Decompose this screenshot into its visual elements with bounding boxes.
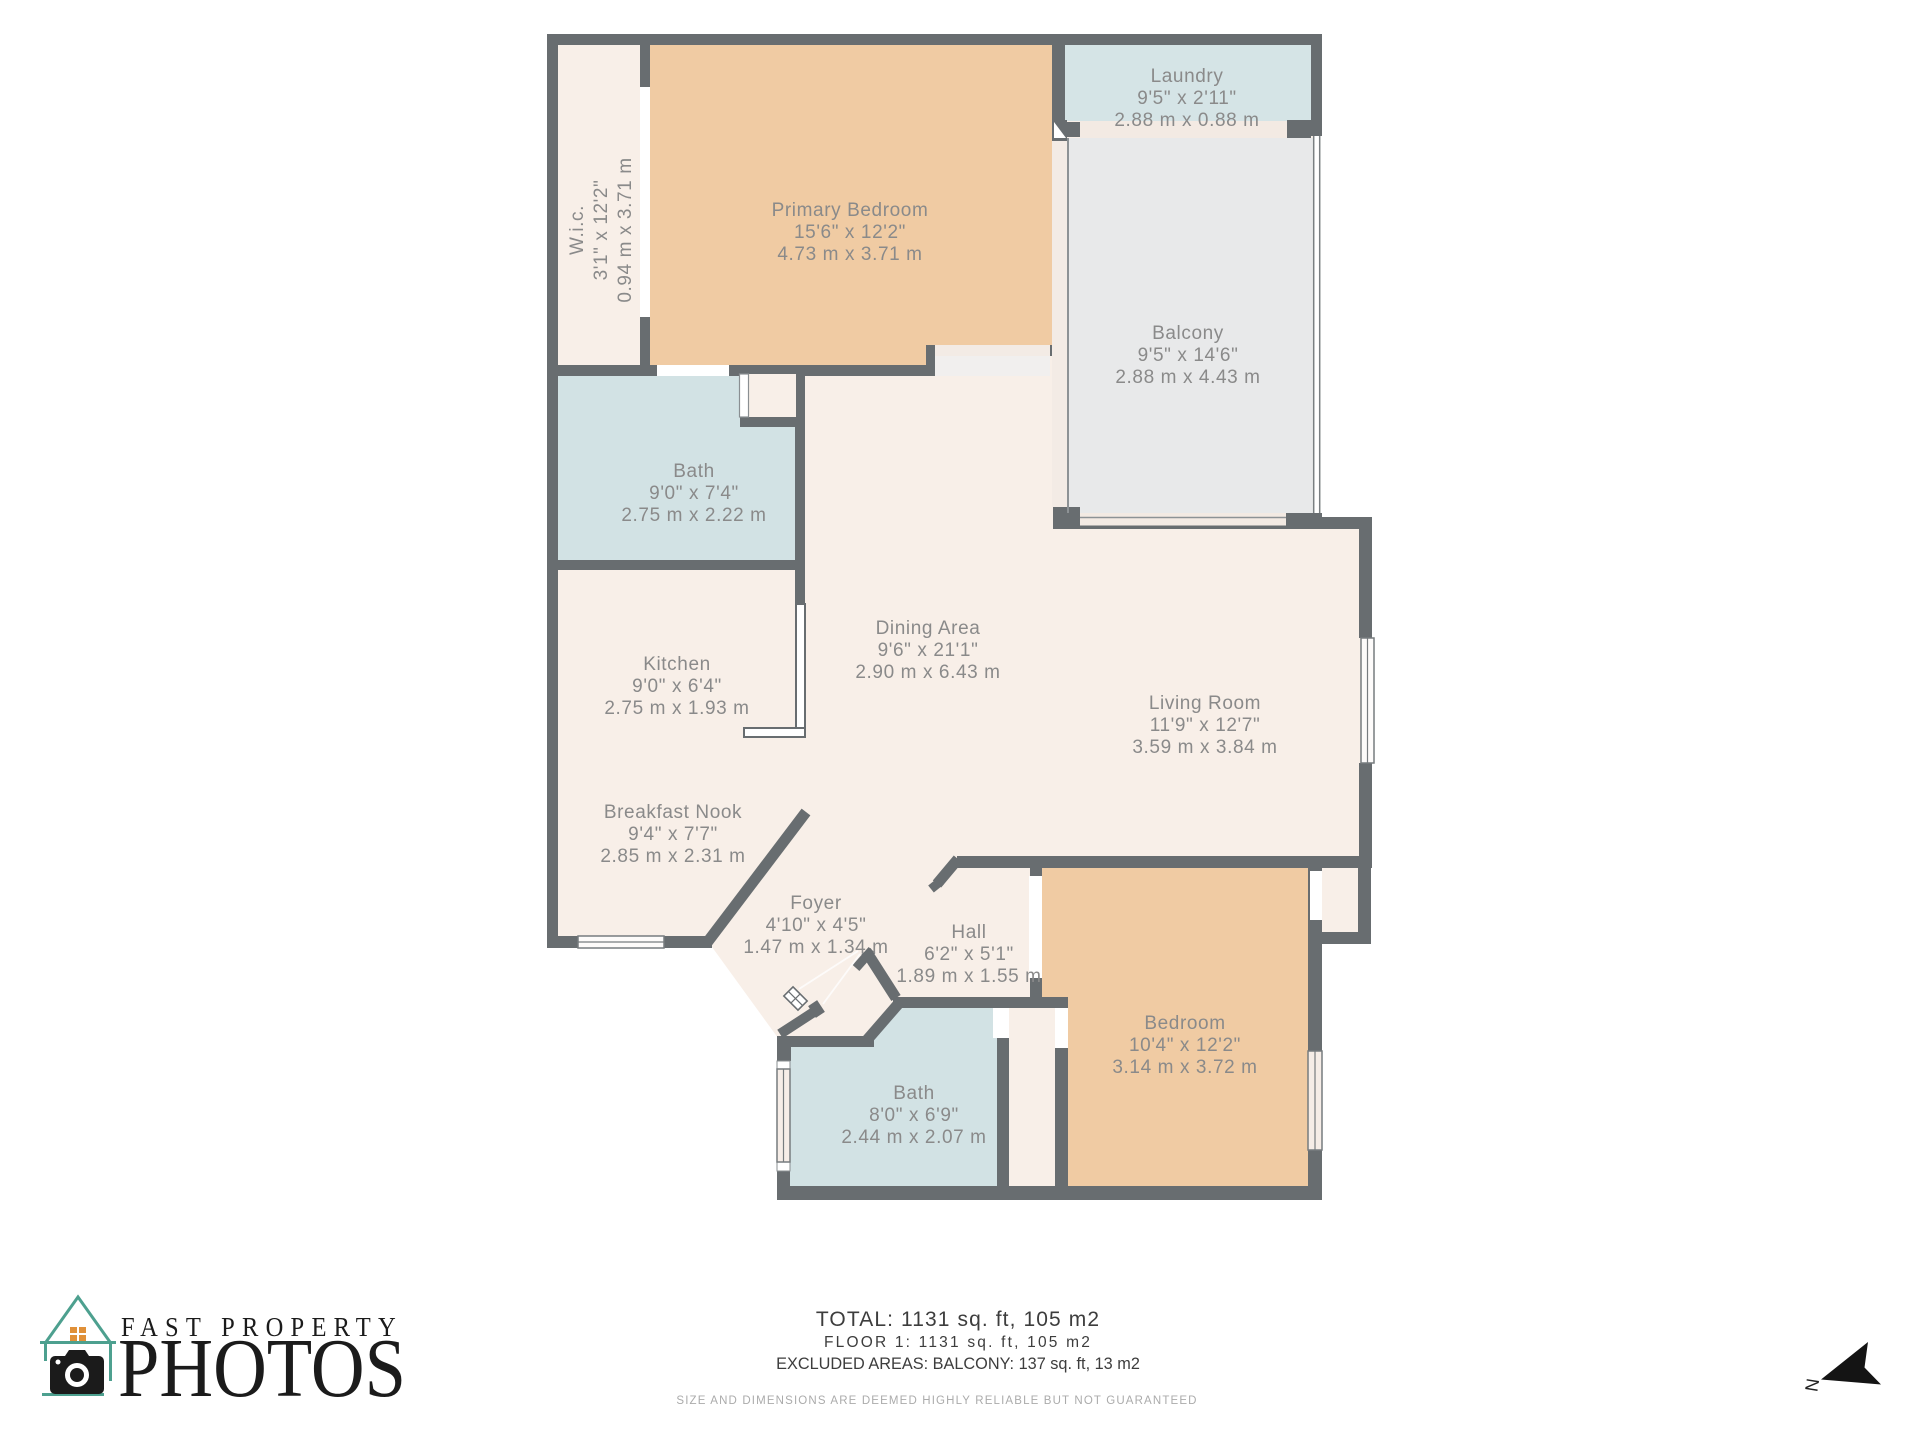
svg-text:Bedroom: Bedroom [1144,1013,1225,1034]
svg-text:2.75 m x 1.93 m: 2.75 m x 1.93 m [604,698,749,719]
svg-text:9'5" x 14'6": 9'5" x 14'6" [1138,345,1239,366]
svg-text:3.59 m x 3.84 m: 3.59 m x 3.84 m [1132,737,1277,758]
svg-text:Foyer: Foyer [790,893,842,914]
svg-text:Kitchen: Kitchen [643,654,711,675]
svg-text:Balcony: Balcony [1152,323,1224,344]
svg-text:10'4" x 12'2": 10'4" x 12'2" [1129,1035,1241,1056]
svg-text:9'5" x 2'11": 9'5" x 2'11" [1137,88,1236,109]
svg-text:0.94 m x 3.71 m: 0.94 m x 3.71 m [615,157,636,302]
svg-text:Bath: Bath [893,1083,935,1104]
svg-text:EXCLUDED AREAS: BALCONY: 137 s: EXCLUDED AREAS: BALCONY: 137 sq. ft, 13 … [776,1355,1140,1373]
svg-text:6'2" x 5'1": 6'2" x 5'1" [924,944,1014,965]
svg-text:Breakfast Nook: Breakfast Nook [604,802,742,823]
svg-text:2.85 m x 2.31 m: 2.85 m x 2.31 m [600,846,745,867]
svg-text:9'0" x 7'4": 9'0" x 7'4" [649,483,739,504]
svg-text:PHOTOS: PHOTOS [118,1322,406,1415]
svg-text:N: N [1801,1377,1823,1393]
svg-text:4'10" x 4'5": 4'10" x 4'5" [766,915,867,936]
svg-text:Bath: Bath [673,461,715,482]
svg-text:3.14 m x 3.72 m: 3.14 m x 3.72 m [1112,1057,1257,1078]
svg-text:3'1" x 12'2": 3'1" x 12'2" [591,180,612,281]
svg-text:11'9" x 12'7": 11'9" x 12'7" [1150,715,1261,736]
svg-text:2.90 m x 6.43 m: 2.90 m x 6.43 m [855,662,1000,683]
svg-text:Laundry: Laundry [1151,66,1224,87]
svg-text:FLOOR 1: 1131 sq. ft, 105 m2: FLOOR 1: 1131 sq. ft, 105 m2 [824,1334,1092,1351]
svg-text:9'6" x 21'1": 9'6" x 21'1" [878,640,979,661]
svg-text:9'0" x 6'4": 9'0" x 6'4" [632,676,722,697]
svg-text:2.44 m x 2.07 m: 2.44 m x 2.07 m [841,1127,986,1148]
svg-text:SIZE AND DIMENSIONS ARE DEEMED: SIZE AND DIMENSIONS ARE DEEMED HIGHLY RE… [676,1395,1197,1407]
svg-text:8'0" x 6'9": 8'0" x 6'9" [869,1105,959,1126]
svg-text:Dining Area: Dining Area [876,618,981,639]
svg-text:9'4" x 7'7": 9'4" x 7'7" [628,824,718,845]
svg-text:4.73 m x 3.71 m: 4.73 m x 3.71 m [777,244,922,265]
svg-text:TOTAL: 1131 sq. ft, 105 m2: TOTAL: 1131 sq. ft, 105 m2 [816,1308,1100,1331]
svg-text:Hall: Hall [951,922,986,943]
svg-text:2.88 m x 4.43 m: 2.88 m x 4.43 m [1115,367,1260,388]
svg-text:2.75 m x 2.22 m: 2.75 m x 2.22 m [621,505,766,526]
svg-text:1.47 m x 1.34 m: 1.47 m x 1.34 m [743,937,888,958]
svg-text:15'6" x 12'2": 15'6" x 12'2" [794,222,906,243]
svg-text:Primary Bedroom: Primary Bedroom [772,200,929,221]
svg-text:Living Room: Living Room [1149,693,1261,714]
svg-text:2.88 m x 0.88 m: 2.88 m x 0.88 m [1114,110,1259,131]
svg-text:1.89 m x 1.55 m: 1.89 m x 1.55 m [896,966,1041,987]
svg-text:W.i.c.: W.i.c. [567,205,588,255]
